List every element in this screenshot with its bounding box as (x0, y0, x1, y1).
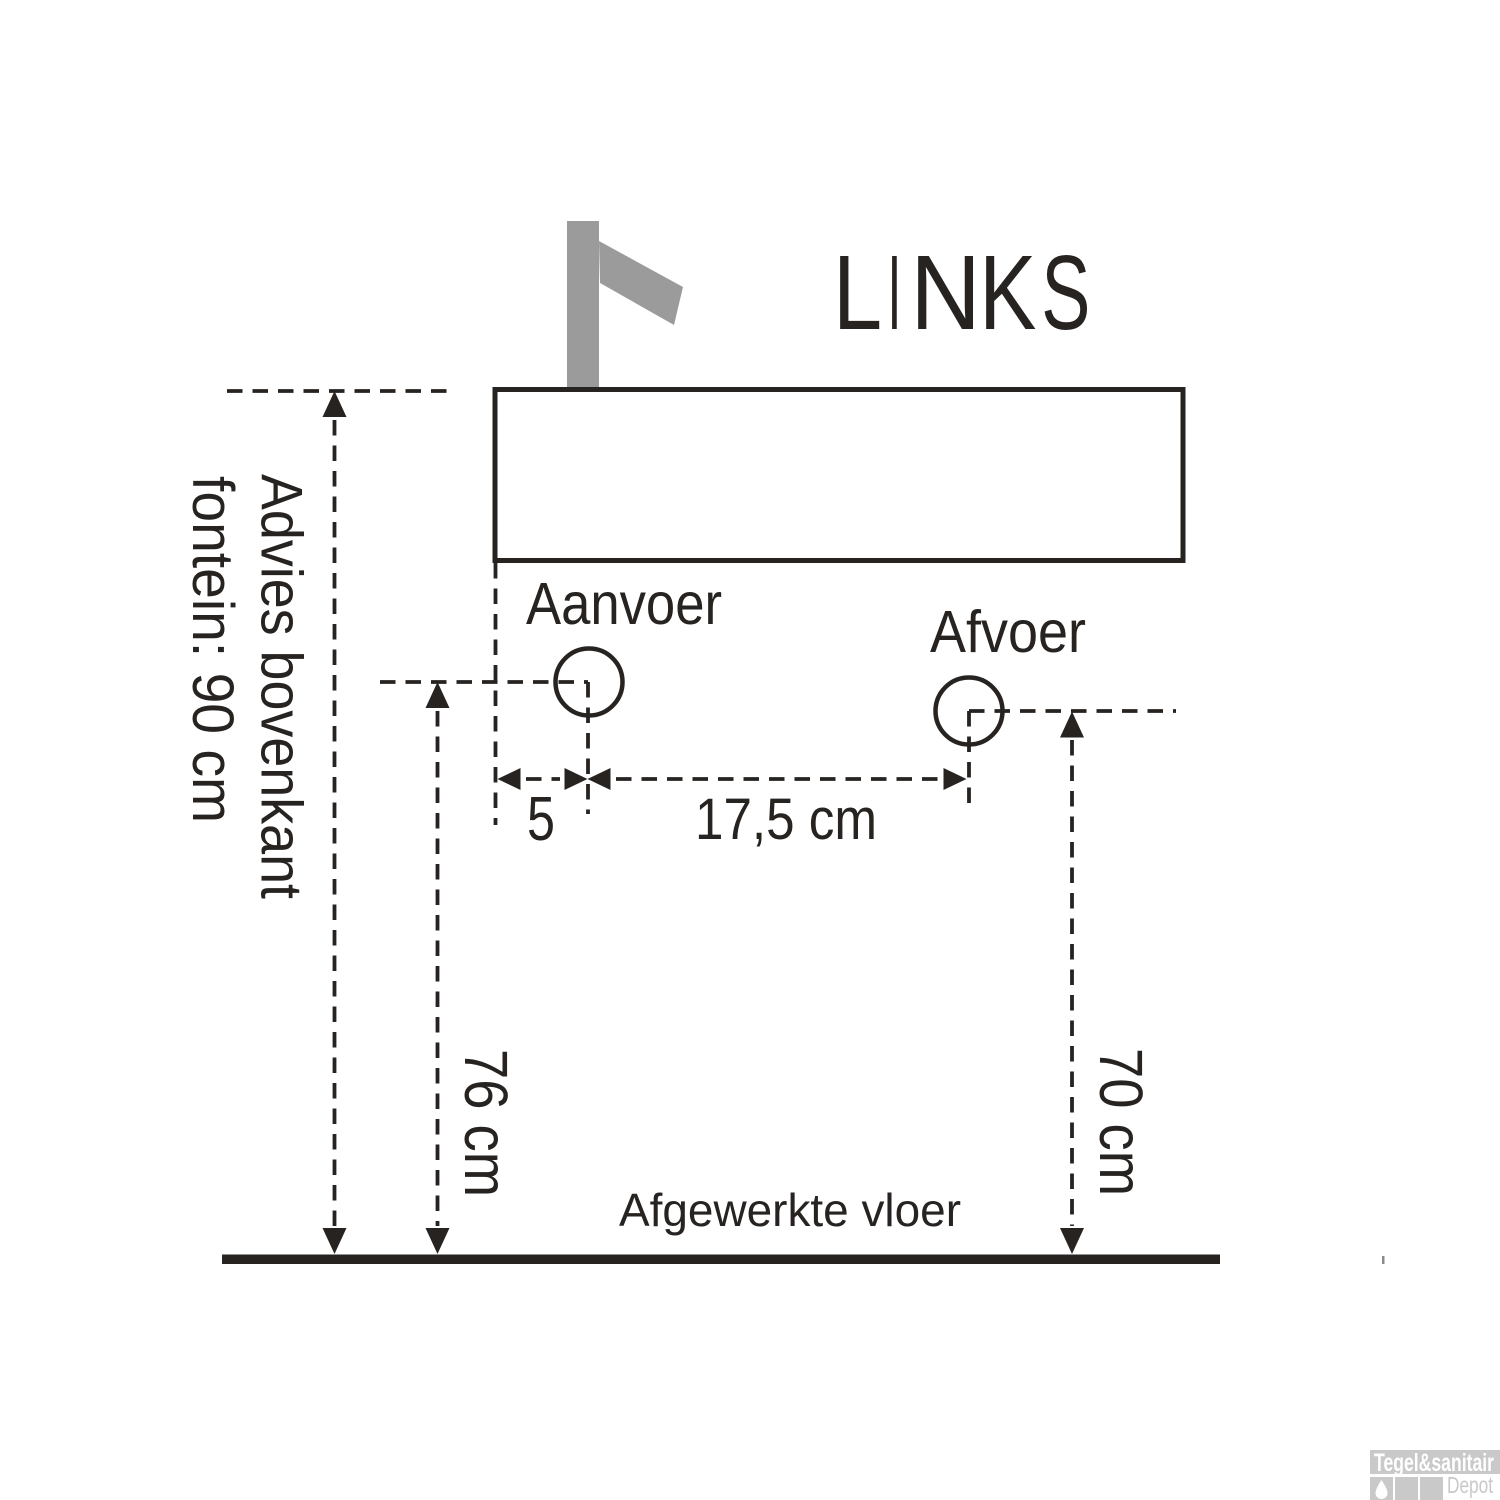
svg-text:K: K (979, 234, 1036, 352)
svg-text:Afgewerkte vloer: Afgewerkte vloer (619, 1184, 961, 1236)
svg-text:S: S (1041, 234, 1090, 352)
svg-text:N: N (910, 234, 981, 352)
svg-text:I: I (888, 233, 902, 352)
svg-text:17,5 cm: 17,5 cm (695, 787, 877, 852)
svg-text:Advies bovenkant: Advies bovenkant (249, 474, 314, 899)
svg-text:L: L (833, 234, 882, 352)
svg-text:fontein: 90 cm: fontein: 90 cm (180, 476, 245, 823)
svg-text:Aanvoer: Aanvoer (526, 571, 722, 637)
svg-text:76 cm: 76 cm (452, 1049, 520, 1197)
svg-text:Afvoer: Afvoer (930, 599, 1086, 665)
svg-text:5: 5 (527, 785, 555, 854)
svg-text:70 cm: 70 cm (1087, 1048, 1155, 1196)
svg-text:Depot: Depot (1447, 1472, 1493, 1498)
